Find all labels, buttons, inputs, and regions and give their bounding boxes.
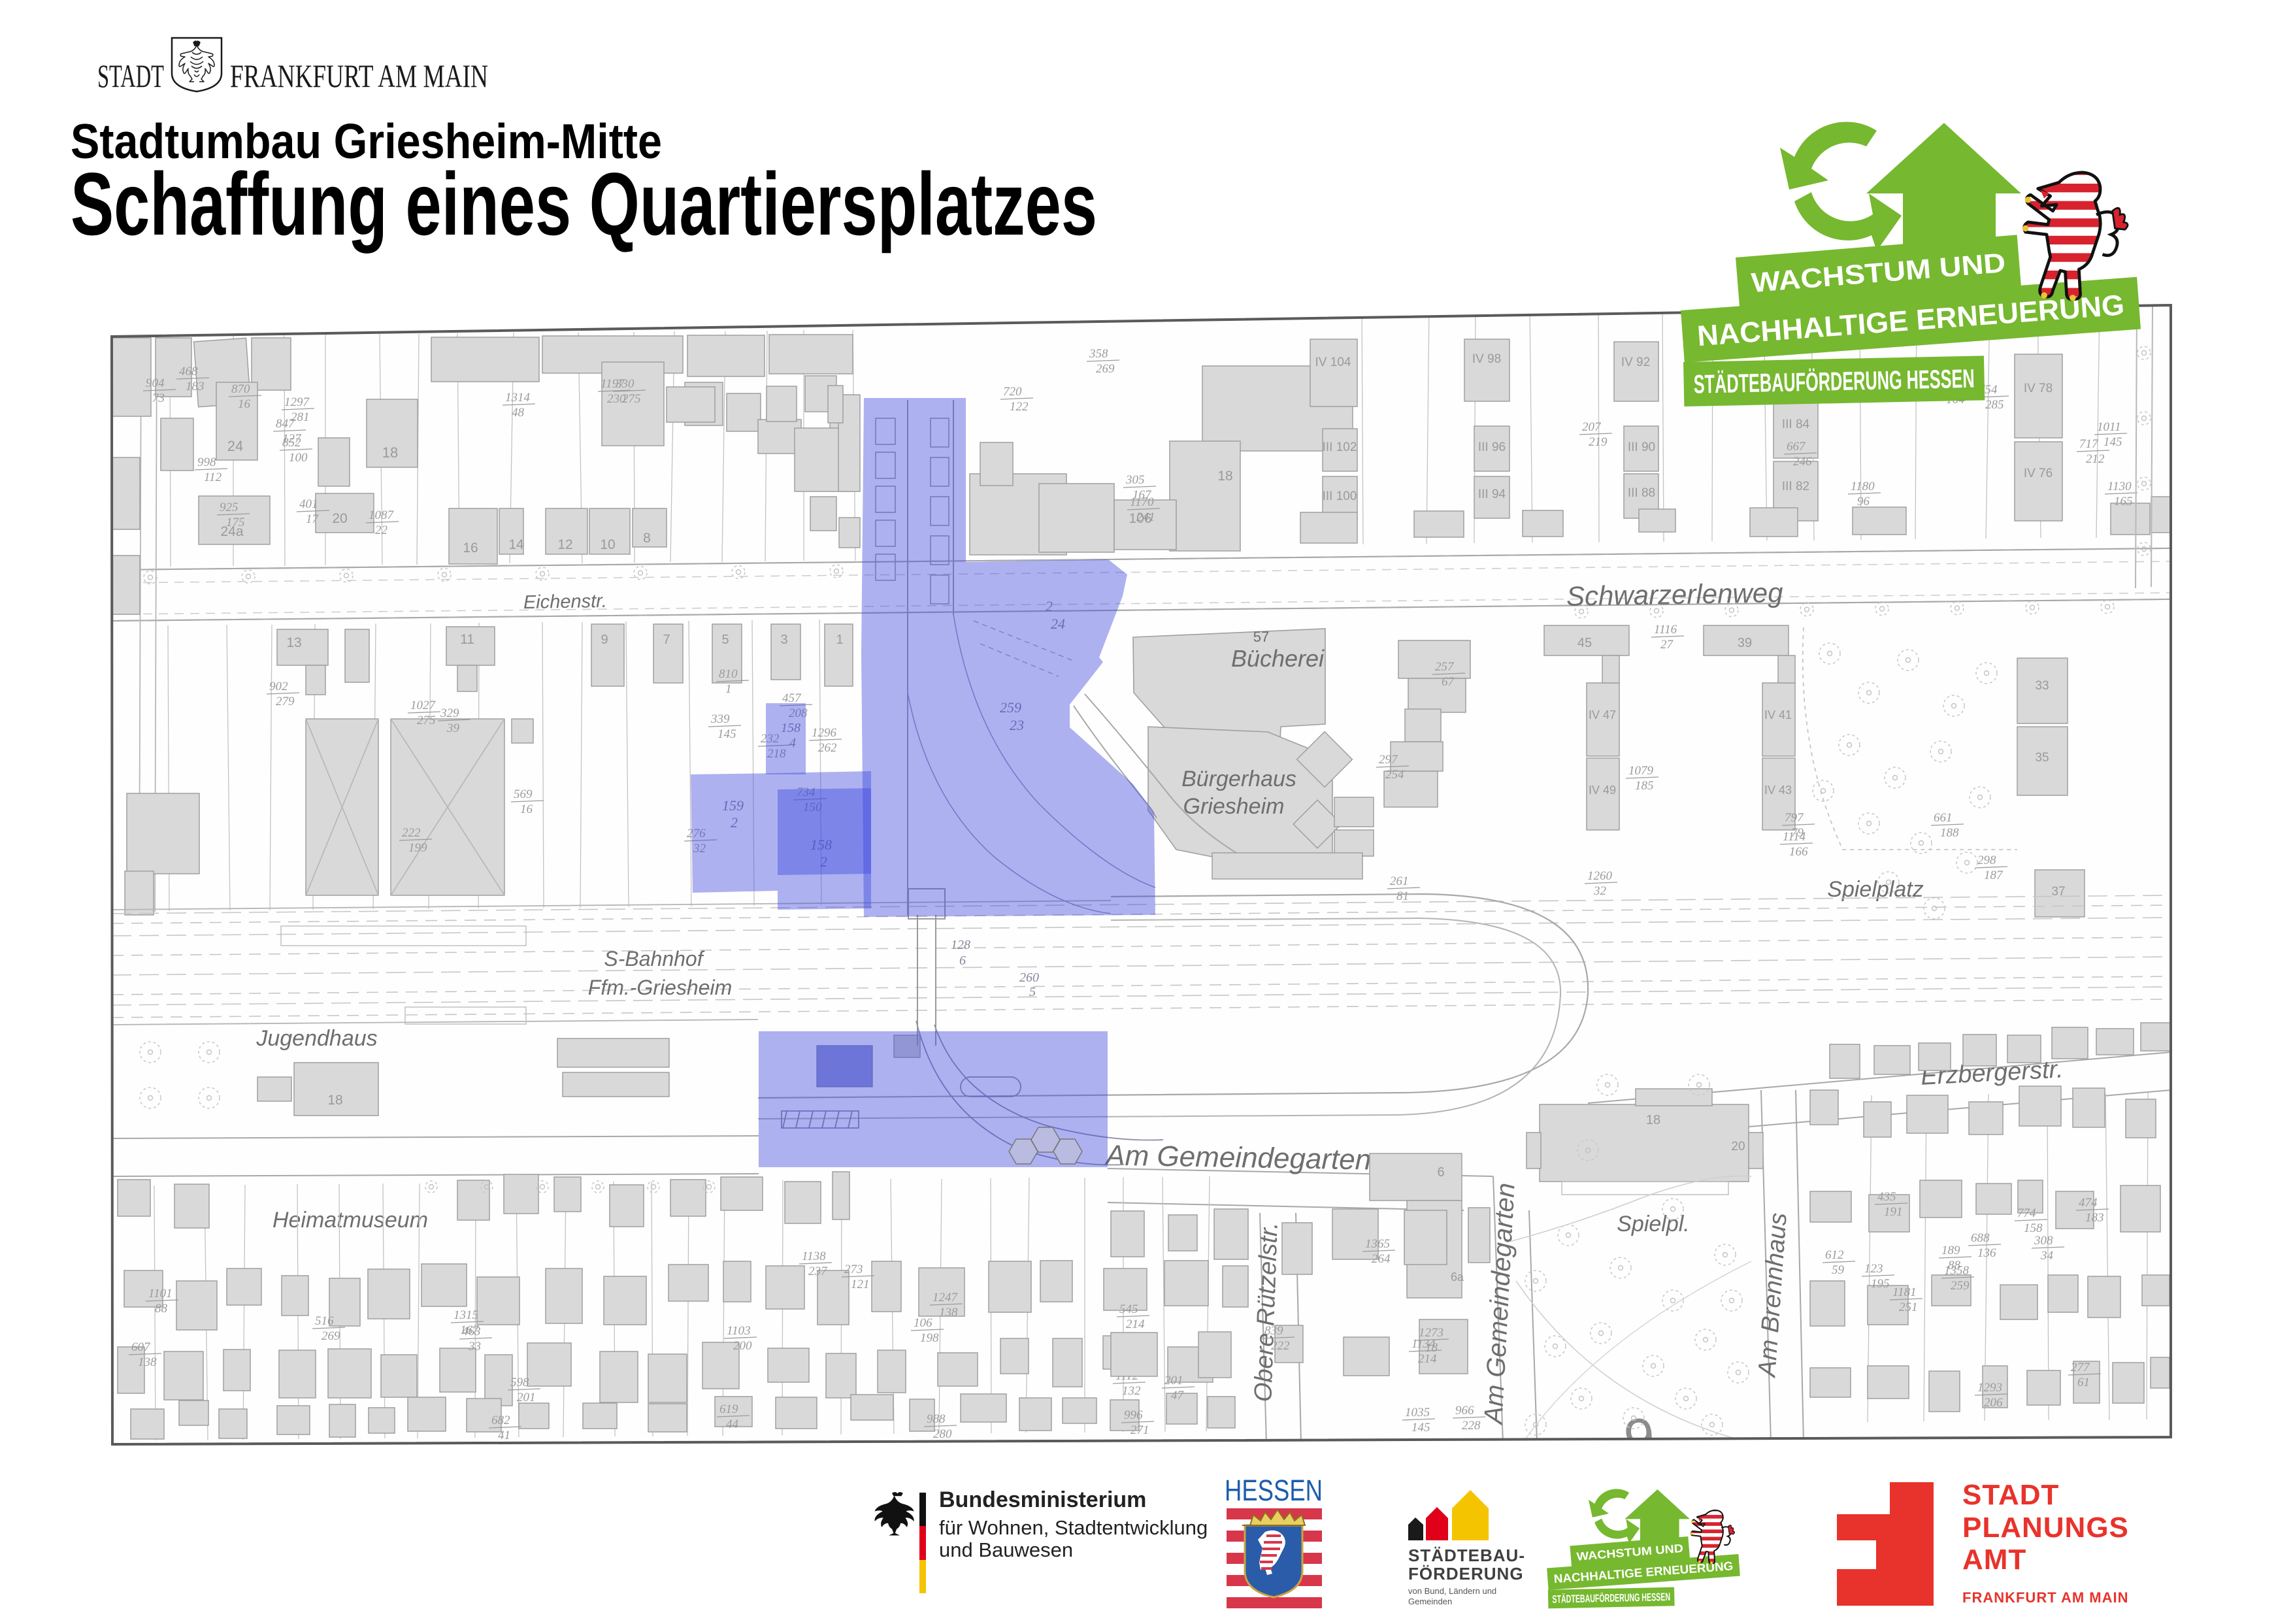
svg-text:305: 305 <box>1125 473 1145 487</box>
svg-text:185: 185 <box>1635 779 1654 793</box>
svg-text:AMT: AMT <box>1962 1544 2026 1576</box>
svg-text:34: 34 <box>2040 1249 2054 1263</box>
svg-text:7: 7 <box>663 633 670 647</box>
svg-text:44: 44 <box>726 1417 739 1431</box>
svg-text:1170: 1170 <box>1130 495 1154 509</box>
svg-text:III 82: III 82 <box>1782 480 1809 493</box>
svg-text:271: 271 <box>1130 1423 1149 1437</box>
svg-text:IV 49: IV 49 <box>1589 784 1616 797</box>
svg-text:228: 228 <box>1462 1419 1481 1433</box>
svg-text:16: 16 <box>463 540 478 555</box>
svg-text:607: 607 <box>131 1340 151 1354</box>
svg-text:797: 797 <box>1785 811 1804 825</box>
svg-text:6: 6 <box>959 953 966 968</box>
svg-text:329: 329 <box>440 706 459 720</box>
svg-text:1296: 1296 <box>812 726 837 740</box>
svg-text:10: 10 <box>600 537 615 552</box>
svg-text:1365: 1365 <box>1365 1237 1390 1251</box>
svg-text:1180: 1180 <box>1851 480 1875 493</box>
svg-text:195: 195 <box>1871 1277 1890 1291</box>
svg-text:839: 839 <box>1264 1324 1283 1338</box>
svg-text:IV 92: IV 92 <box>1621 356 1650 369</box>
svg-text:516: 516 <box>315 1314 334 1328</box>
svg-text:III 100: III 100 <box>1323 489 1357 503</box>
svg-text:183: 183 <box>2085 1211 2104 1225</box>
svg-text:Gemeinden: Gemeinden <box>1408 1597 1452 1606</box>
svg-text:Bundesministerium: Bundesministerium <box>939 1487 1146 1512</box>
svg-text:IV 41: IV 41 <box>1764 708 1792 721</box>
svg-text:20: 20 <box>332 511 347 526</box>
svg-text:191: 191 <box>1884 1205 1903 1219</box>
svg-text:1079: 1079 <box>1628 764 1654 778</box>
svg-text:280: 280 <box>933 1427 952 1441</box>
svg-text:1260: 1260 <box>1587 869 1613 883</box>
svg-text:121: 121 <box>851 1278 870 1291</box>
svg-text:264: 264 <box>1372 1252 1391 1266</box>
svg-text:339: 339 <box>710 712 730 726</box>
svg-text:106: 106 <box>1129 511 1151 526</box>
svg-text:214: 214 <box>1418 1352 1437 1366</box>
svg-text:308: 308 <box>2034 1234 2053 1248</box>
svg-text:269: 269 <box>322 1329 340 1343</box>
svg-text:457: 457 <box>782 691 802 705</box>
svg-text:279: 279 <box>276 695 295 708</box>
svg-text:1101: 1101 <box>148 1287 173 1301</box>
svg-text:1181: 1181 <box>1892 1285 1917 1299</box>
svg-text:6: 6 <box>1437 1165 1444 1180</box>
svg-text:Heimatmuseum: Heimatmuseum <box>272 1208 428 1233</box>
svg-text:902: 902 <box>269 680 288 693</box>
svg-text:57: 57 <box>1253 629 1269 645</box>
svg-text:1035: 1035 <box>1405 1406 1430 1419</box>
svg-text:9: 9 <box>601 633 608 647</box>
svg-text:6a: 6a <box>1451 1270 1464 1284</box>
svg-text:39: 39 <box>1738 636 1752 650</box>
svg-text:STÄDTEBAU-: STÄDTEBAU- <box>1408 1546 1525 1565</box>
svg-text:145: 145 <box>1411 1421 1430 1434</box>
svg-text:774: 774 <box>2017 1206 2036 1220</box>
svg-text:59: 59 <box>1832 1263 1845 1277</box>
svg-text:III 96: III 96 <box>1478 440 1506 454</box>
svg-text:III 84: III 84 <box>1782 418 1810 431</box>
svg-text:61: 61 <box>2077 1376 2090 1389</box>
svg-text:18: 18 <box>1217 469 1232 484</box>
svg-text:145: 145 <box>718 727 736 741</box>
svg-text:FRANKFURT AM MAIN: FRANKFURT AM MAIN <box>230 58 488 94</box>
svg-text:132: 132 <box>1122 1384 1141 1398</box>
svg-text:STÄDTEBAUFÖRDERUNG HESSEN: STÄDTEBAUFÖRDERUNG HESSEN <box>1693 364 1975 399</box>
svg-text:189: 189 <box>1941 1244 1960 1257</box>
svg-text:201: 201 <box>1164 1374 1183 1387</box>
svg-text:8: 8 <box>643 531 651 546</box>
svg-text:1116: 1116 <box>1654 623 1677 637</box>
svg-text:IV 47: IV 47 <box>1589 708 1616 721</box>
svg-text:158: 158 <box>2024 1221 2043 1235</box>
svg-text:667: 667 <box>1787 440 1806 454</box>
svg-text:222: 222 <box>402 826 421 840</box>
svg-text:Schwarzerlenweg: Schwarzerlenweg <box>1566 577 1783 612</box>
svg-text:1: 1 <box>725 682 732 696</box>
svg-text:STADT: STADT <box>1962 1479 2059 1511</box>
svg-text:138: 138 <box>138 1355 157 1369</box>
svg-text:474: 474 <box>2079 1196 2098 1210</box>
svg-text:183: 183 <box>186 380 205 393</box>
svg-text:Spielpl.: Spielpl. <box>1617 1212 1690 1236</box>
svg-text:IV 78: IV 78 <box>2024 382 2053 395</box>
svg-text:IV 98: IV 98 <box>1472 352 1501 366</box>
svg-text:Schaffung eines Quartiersplatz: Schaffung eines Quartiersplatzes <box>71 154 1097 254</box>
svg-text:435: 435 <box>1877 1190 1896 1204</box>
svg-text:996: 996 <box>1124 1408 1143 1422</box>
svg-text:Griesheim: Griesheim <box>1183 794 1285 819</box>
svg-text:11: 11 <box>460 632 474 647</box>
svg-text:24a: 24a <box>220 524 243 539</box>
svg-text:HESSEN: HESSEN <box>1225 1474 1323 1507</box>
svg-text:1134: 1134 <box>1411 1337 1436 1351</box>
svg-text:262: 262 <box>818 741 837 755</box>
svg-text:230: 230 <box>607 392 626 406</box>
svg-text:251: 251 <box>1899 1301 1918 1314</box>
svg-text:39: 39 <box>446 721 460 735</box>
svg-text:3: 3 <box>780 633 787 647</box>
svg-text:12: 12 <box>557 537 572 552</box>
svg-text:401: 401 <box>299 497 318 511</box>
svg-text:925: 925 <box>220 501 239 514</box>
svg-text:106: 106 <box>914 1316 932 1330</box>
svg-text:48: 48 <box>512 406 525 420</box>
svg-text:33: 33 <box>468 1340 481 1353</box>
svg-text:259: 259 <box>1951 1279 1970 1293</box>
svg-text:273: 273 <box>844 1263 863 1276</box>
svg-text:27: 27 <box>1660 638 1674 652</box>
svg-text:IV 76: IV 76 <box>2024 467 2053 480</box>
svg-text:275: 275 <box>417 714 436 727</box>
svg-text:96: 96 <box>1857 495 1870 508</box>
svg-text:1197: 1197 <box>601 377 625 391</box>
svg-text:123: 123 <box>1864 1262 1883 1276</box>
svg-text:STÄDTEBAUFÖRDERUNG HESSEN: STÄDTEBAUFÖRDERUNG HESSEN <box>1552 1591 1670 1606</box>
svg-text:PLANUNGS: PLANUNGS <box>1962 1512 2129 1544</box>
svg-text:261: 261 <box>1390 874 1409 888</box>
svg-text:1138: 1138 <box>802 1250 826 1263</box>
svg-text:128: 128 <box>951 938 970 952</box>
svg-text:257: 257 <box>1435 660 1455 674</box>
svg-text:463: 463 <box>462 1325 481 1338</box>
svg-text:1358: 1358 <box>1944 1264 1970 1278</box>
svg-text:717: 717 <box>2079 437 2099 451</box>
svg-text:IV 104: IV 104 <box>1315 356 1351 369</box>
svg-text:198: 198 <box>920 1331 939 1345</box>
svg-text:468: 468 <box>179 365 198 378</box>
svg-text:219: 219 <box>1589 435 1608 449</box>
svg-text:18: 18 <box>1646 1113 1660 1127</box>
svg-text:FRANKFURT AM MAIN: FRANKFURT AM MAIN <box>1962 1589 2128 1606</box>
svg-text:16: 16 <box>238 397 251 411</box>
svg-text:904: 904 <box>146 376 165 390</box>
svg-text:5: 5 <box>721 633 729 647</box>
svg-text:852: 852 <box>282 436 301 450</box>
svg-text:1087: 1087 <box>369 508 395 522</box>
svg-text:IV 43: IV 43 <box>1764 784 1792 797</box>
svg-text:1247: 1247 <box>932 1291 959 1304</box>
svg-text:254: 254 <box>1385 768 1404 782</box>
svg-text:297: 297 <box>1379 753 1398 767</box>
svg-text:22: 22 <box>375 523 388 537</box>
svg-text:260: 260 <box>1019 970 1039 985</box>
svg-text:67: 67 <box>1442 675 1455 689</box>
svg-text:32: 32 <box>1593 884 1607 898</box>
svg-text:122: 122 <box>1010 400 1029 414</box>
svg-text:545: 545 <box>1119 1302 1138 1316</box>
svg-text:und Bauwesen: und Bauwesen <box>939 1538 1073 1561</box>
svg-text:598: 598 <box>510 1376 529 1389</box>
svg-text:281: 281 <box>291 410 310 424</box>
svg-text:661: 661 <box>1934 811 1953 825</box>
svg-text:für Wohnen, Stadtentwicklung: für Wohnen, Stadtentwicklung <box>939 1516 1208 1539</box>
svg-text:16: 16 <box>520 803 533 816</box>
svg-text:569: 569 <box>514 787 533 801</box>
svg-text:73: 73 <box>152 391 165 405</box>
svg-text:S-Bahnhof: S-Bahnhof <box>604 947 704 970</box>
svg-text:187: 187 <box>1984 869 2004 882</box>
svg-text:246: 246 <box>1793 455 1812 469</box>
svg-text:35: 35 <box>2035 751 2049 765</box>
svg-text:199: 199 <box>408 841 427 855</box>
svg-text:FÖRDERUNG: FÖRDERUNG <box>1408 1564 1524 1583</box>
svg-text:269: 269 <box>1096 362 1115 376</box>
svg-text:1130: 1130 <box>2107 480 2132 493</box>
svg-text:1297: 1297 <box>284 395 310 409</box>
svg-text:88: 88 <box>155 1302 168 1316</box>
svg-text:358: 358 <box>1089 347 1108 361</box>
svg-text:201: 201 <box>517 1391 536 1404</box>
svg-text:III 102: III 102 <box>1323 440 1357 454</box>
svg-text:47: 47 <box>1171 1389 1185 1402</box>
svg-text:13: 13 <box>286 635 301 650</box>
svg-text:998: 998 <box>197 456 216 469</box>
svg-text:81: 81 <box>1396 889 1409 903</box>
svg-text:III 94: III 94 <box>1478 488 1506 501</box>
svg-text:1314: 1314 <box>505 391 531 405</box>
svg-text:136: 136 <box>1977 1246 1996 1260</box>
svg-text:1103: 1103 <box>727 1324 751 1338</box>
svg-text:688: 688 <box>1971 1231 1990 1245</box>
svg-text:612: 612 <box>1825 1248 1844 1262</box>
svg-text:45: 45 <box>1577 636 1592 650</box>
svg-text:277: 277 <box>2071 1361 2090 1374</box>
svg-text:165: 165 <box>2114 495 2133 508</box>
svg-text:Ffm.-Griesheim: Ffm.-Griesheim <box>588 976 732 999</box>
svg-text:20: 20 <box>1731 1140 1745 1153</box>
svg-text:III 88: III 88 <box>1628 486 1655 500</box>
svg-text:285: 285 <box>1985 398 2004 412</box>
svg-text:Bücherei: Bücherei <box>1231 645 1325 672</box>
svg-text:24: 24 <box>227 438 243 454</box>
svg-text:1: 1 <box>836 633 843 647</box>
svg-text:17: 17 <box>306 512 320 526</box>
svg-text:1315: 1315 <box>454 1308 478 1322</box>
svg-text:720: 720 <box>1003 385 1022 399</box>
svg-text:18: 18 <box>382 444 398 461</box>
svg-text:41: 41 <box>498 1429 510 1442</box>
svg-text:STADT: STADT <box>97 58 164 94</box>
svg-text:1027: 1027 <box>410 699 437 712</box>
svg-text:Eichenstr.: Eichenstr. <box>523 591 607 613</box>
svg-text:Jugendhaus: Jugendhaus <box>256 1026 377 1051</box>
svg-text:100: 100 <box>289 451 308 465</box>
svg-text:212: 212 <box>2086 452 2105 466</box>
svg-text:112: 112 <box>204 471 222 484</box>
svg-text:237: 237 <box>808 1265 828 1278</box>
svg-text:870: 870 <box>231 382 250 396</box>
svg-text:37: 37 <box>2051 885 2065 899</box>
svg-text:5: 5 <box>1029 985 1036 999</box>
svg-text:33: 33 <box>2035 679 2049 693</box>
svg-text:682: 682 <box>491 1414 510 1427</box>
svg-text:1114: 1114 <box>1783 830 1806 844</box>
svg-text:188: 188 <box>1940 826 1959 840</box>
svg-text:1011: 1011 <box>2097 420 2121 434</box>
svg-text:988: 988 <box>927 1412 946 1426</box>
svg-text:619: 619 <box>719 1402 738 1416</box>
svg-text:18: 18 <box>327 1093 342 1108</box>
svg-text:Am Gemeindegarten: Am Gemeindegarten <box>1104 1139 1372 1176</box>
svg-text:von Bund, Ländern und: von Bund, Ländern und <box>1408 1586 1496 1596</box>
svg-text:200: 200 <box>733 1339 752 1353</box>
svg-text:298: 298 <box>1977 853 1996 867</box>
svg-text:222: 222 <box>1271 1339 1290 1353</box>
svg-text:166: 166 <box>1789 845 1808 859</box>
svg-text:1293: 1293 <box>1977 1381 2002 1395</box>
svg-text:III 90: III 90 <box>1628 440 1655 454</box>
svg-text:Bürgerhaus: Bürgerhaus <box>1181 767 1296 791</box>
svg-text:207: 207 <box>1582 420 1602 434</box>
svg-text:138: 138 <box>939 1306 958 1319</box>
svg-text:810: 810 <box>719 667 738 681</box>
svg-text:966: 966 <box>1455 1404 1474 1417</box>
svg-text:14: 14 <box>508 537 524 552</box>
svg-text:206: 206 <box>1984 1396 2003 1410</box>
svg-text:145: 145 <box>2103 435 2122 449</box>
svg-text:214: 214 <box>1126 1317 1145 1331</box>
